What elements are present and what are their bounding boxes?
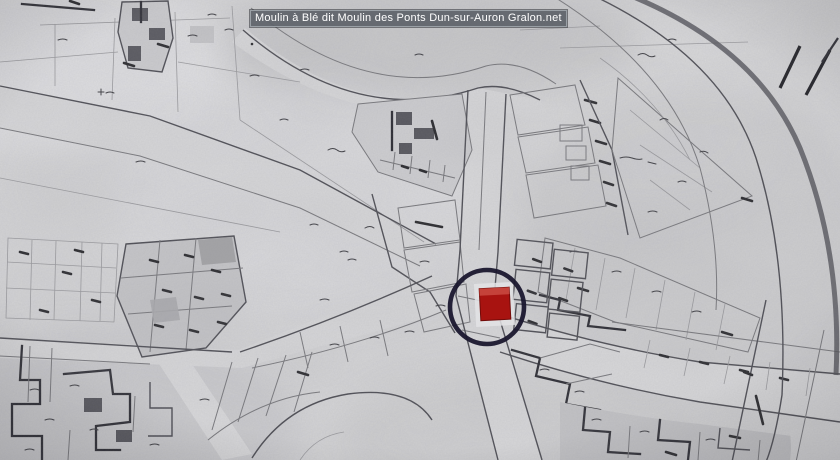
cadastral-map: [0, 0, 840, 460]
map-photo: Moulin à Blé dit Moulin des Ponts Dun-su…: [0, 0, 840, 460]
caption-overlay: Moulin à Blé dit Moulin des Ponts Dun-su…: [250, 10, 567, 27]
vignette: [0, 0, 840, 460]
